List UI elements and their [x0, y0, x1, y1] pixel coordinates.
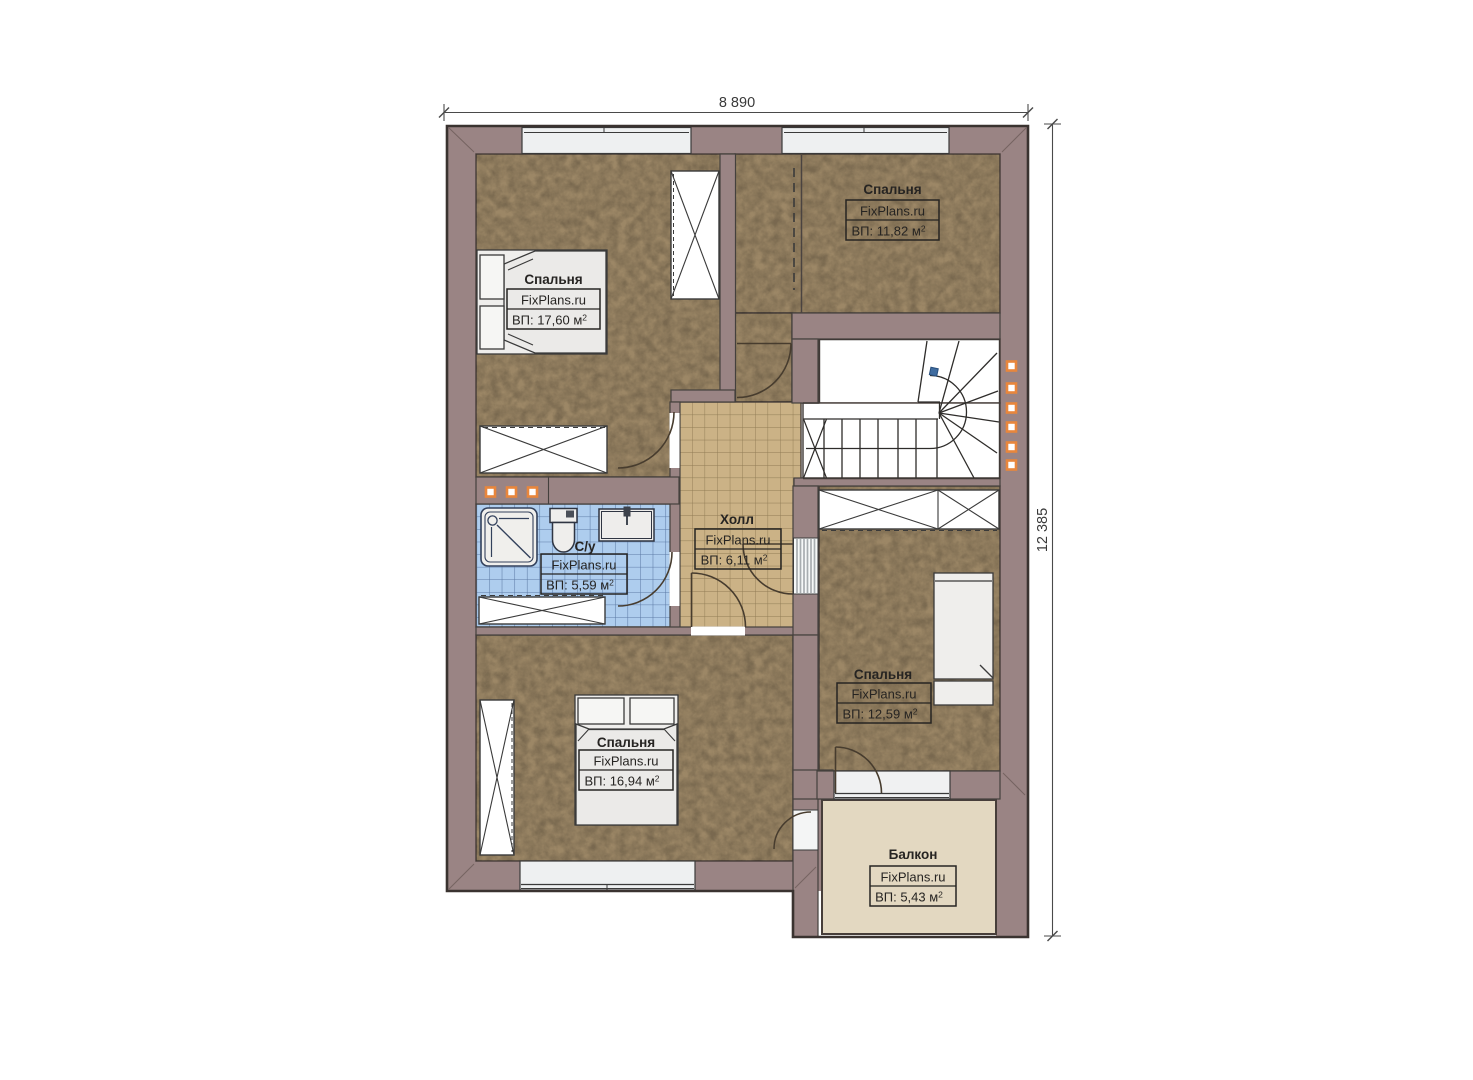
svg-text:Спальня: Спальня: [524, 272, 582, 287]
svg-text:ВП: 11,82 м2: ВП: 11,82 м2: [851, 224, 925, 239]
svg-text:FixPlans.ru: FixPlans.ru: [860, 204, 925, 219]
svg-text:FixPlans.ru: FixPlans.ru: [551, 558, 616, 573]
svg-text:Балкон: Балкон: [889, 847, 938, 862]
svg-text:8 890: 8 890: [719, 95, 755, 111]
svg-text:FixPlans.ru: FixPlans.ru: [851, 687, 916, 702]
svg-text:Спальня: Спальня: [854, 667, 912, 682]
svg-text:ВП: 12,59 м2: ВП: 12,59 м2: [842, 707, 917, 722]
svg-text:С/у: С/у: [574, 539, 596, 554]
svg-text:Спальня: Спальня: [863, 182, 921, 197]
svg-text:FixPlans.ru: FixPlans.ru: [521, 293, 586, 308]
svg-text:ВП: 17,60 м2: ВП: 17,60 м2: [512, 313, 587, 328]
svg-text:FixPlans.ru: FixPlans.ru: [705, 533, 770, 548]
svg-text:Спальня: Спальня: [597, 735, 655, 750]
svg-text:ВП: 5,43 м2: ВП: 5,43 м2: [875, 890, 943, 905]
svg-text:ВП: 16,94 м2: ВП: 16,94 м2: [584, 774, 659, 789]
svg-text:FixPlans.ru: FixPlans.ru: [880, 870, 945, 885]
svg-text:12 385: 12 385: [1035, 508, 1051, 552]
svg-text:ВП: 5,59 м2: ВП: 5,59 м2: [546, 578, 614, 593]
svg-text:ВП: 6,11 м2: ВП: 6,11 м2: [701, 553, 768, 568]
svg-text:FixPlans.ru: FixPlans.ru: [593, 754, 658, 769]
svg-text:Холл: Холл: [720, 512, 754, 527]
